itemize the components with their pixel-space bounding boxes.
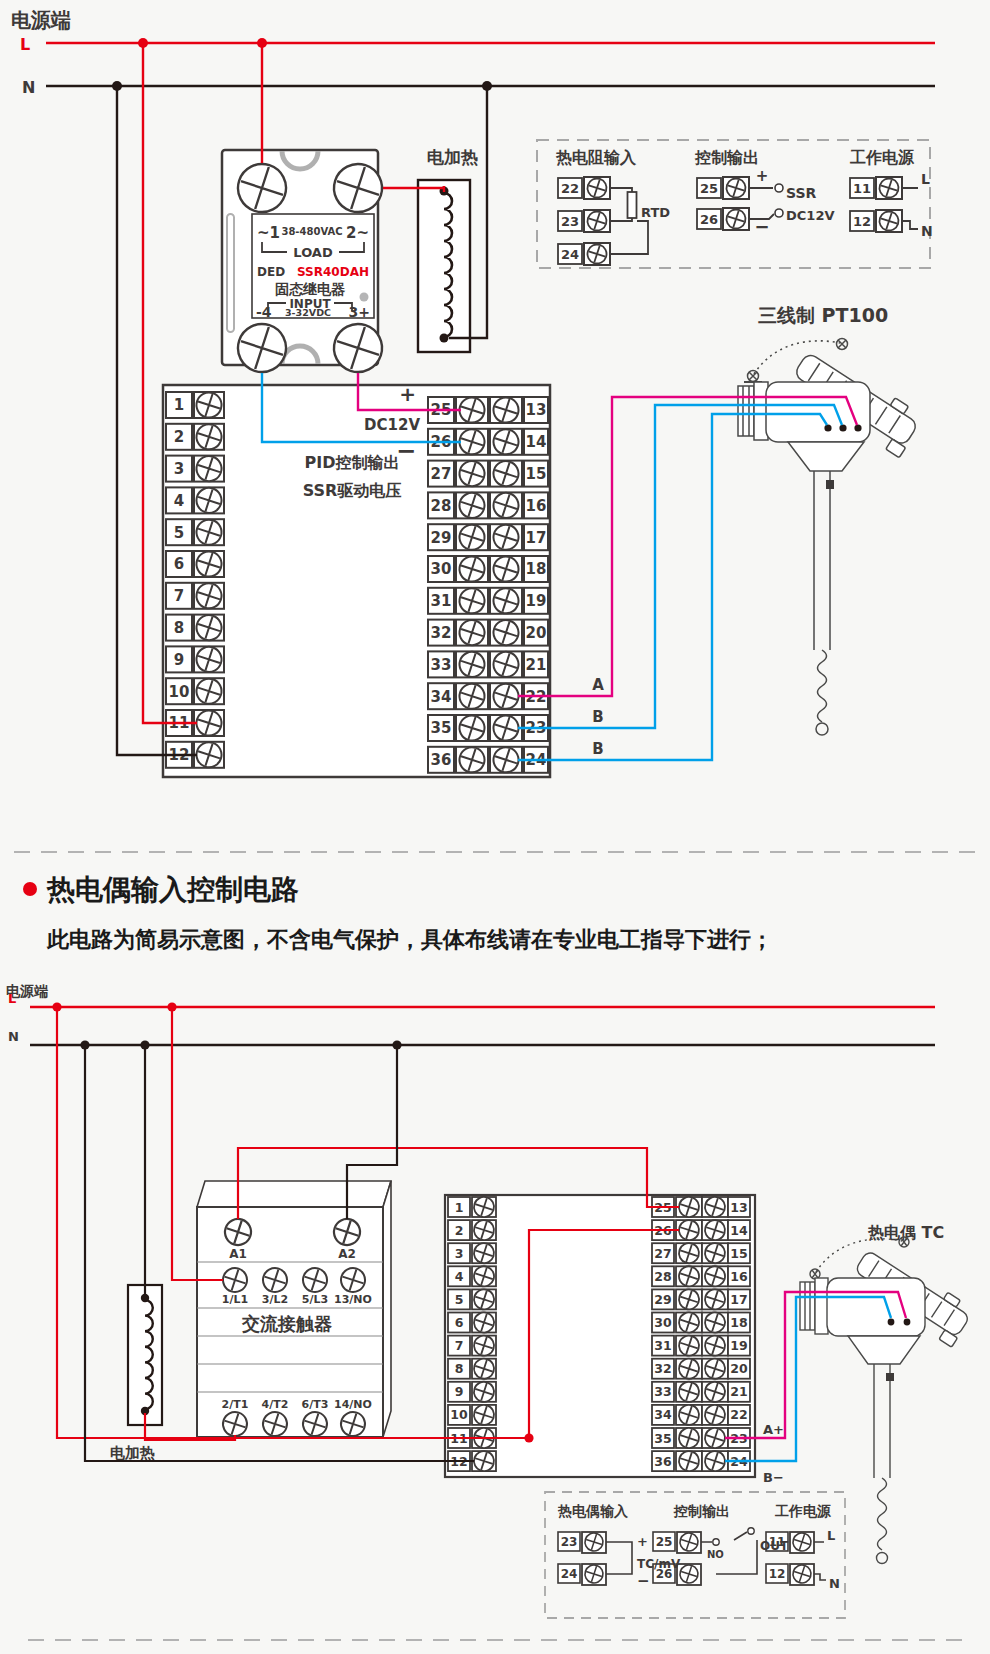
line-L-label-2: L [8,991,16,1006]
terminal-number: 4 [455,1269,464,1284]
ssr-terminal1-label: ~1 [257,224,280,242]
contactor-terminal-label: 1/L1 [222,1293,248,1306]
terminal-number: 34 [431,688,452,706]
terminal-number: 18 [730,1315,747,1330]
wire-B-minus-label: B− [763,1470,784,1485]
terminal-number: 29 [431,529,452,547]
wire-B1-label: B [592,708,603,726]
terminal-number: 4 [174,492,184,510]
contactor-name: 交流接触器 [241,1313,332,1334]
terminal-number: 15 [526,465,547,483]
terminal-number: 3 [174,460,184,478]
terminal-number: 33 [654,1384,671,1399]
sensor-neck [788,442,864,471]
terminal-number: 29 [654,1292,671,1307]
terminal-number: 15 [730,1246,747,1261]
rtd-label: RTD [641,205,670,220]
terminal-number: 1 [174,396,184,414]
tc-input-wires [606,1542,632,1574]
terminal-number: 9 [455,1384,464,1399]
top-circuit: 电源端 L N ~1 38-480VAC 2~ LOAD DED SSR40DA… [11,8,935,777]
sensor-nut [738,386,754,436]
line-L-label: L [20,35,30,54]
terminal-number: 32 [654,1361,671,1376]
terminal-number: 36 [431,751,452,769]
sensor-element-coil [818,650,827,722]
sensor-body-2 [827,1278,925,1336]
contactor-terminal-label: 3/L2 [262,1293,288,1306]
terminal-number: 22 [730,1407,747,1422]
terminal-number: 23 [561,214,579,229]
contactor-terminal-label: 2/T1 [222,1398,249,1411]
terminal-number: 12 [853,214,871,229]
terminal-number: 13 [526,401,547,419]
guide-ssr-label: SSR [786,185,817,201]
terminal-number: 17 [526,529,547,547]
terminal-number: 16 [526,497,547,515]
terminal-number: 33 [431,656,452,674]
terminal-number: 2 [174,428,184,446]
sensor-nut-2 [800,1282,815,1330]
power-terminal-label: 电源端 [11,8,71,32]
terminal-number: 19 [526,592,547,610]
terminal-number: 31 [431,592,452,610]
heater-label: 电加热 [427,147,478,167]
ssr-load-label: LOAD [293,245,333,260]
guide-N-label: N [921,223,933,239]
terminal-number: 18 [526,560,547,578]
wire-A-label: A [592,676,604,694]
terminal-number: 3 [455,1246,464,1261]
wiring-diagram-page: 电源端 L N ~1 38-480VAC 2~ LOAD DED SSR40DA… [0,0,990,1654]
terminal-number: 20 [526,624,547,642]
terminal-number: 25 [656,1535,673,1549]
wire-rtd-B1 [518,405,842,728]
block-plus-label: + [399,382,416,406]
contactor-terminal-label: 13/NO [334,1293,372,1306]
terminal-number: 30 [431,560,452,578]
electric-heater-2: 电加热 [110,1285,162,1462]
rtd-resistor [628,192,637,218]
block-dc12v-label: DC12V [364,416,420,434]
ssr-model: SSR40DAH [297,265,369,279]
terminal-number: 6 [455,1315,464,1330]
control-output-title: 控制输出 [694,148,759,167]
wire-rtd-B2 [518,414,827,760]
sensor-body [766,382,870,442]
control-output-wires [749,188,774,219]
working-power-wires [902,188,918,229]
tc-input-title: 热电偶输入 [557,1503,629,1519]
pt100-sensor: 三线制 PT100 [738,304,925,735]
sensor-neck-2 [848,1336,920,1364]
terminal-number: 16 [730,1269,748,1284]
ssr-input-voltage: 3-32VDC [285,307,331,318]
terminal-number: 24 [561,247,579,262]
terminal-number: 23 [561,1535,578,1549]
ssr-drive-label: SSR驱动电压 [303,481,402,500]
contactor-terminal-label: 14/NO [334,1398,372,1411]
sensor-probe-2 [874,1364,890,1478]
wire-A-plus-label: A+ [763,1422,784,1437]
terminal-number: 8 [455,1361,464,1376]
ssr-input-neg: -4 [256,304,272,320]
ssr-terminal2-label: 2~ [346,224,369,242]
wiring-guide-box-bottom: 热电偶输入 控制输出 工作电源 232425261112 + − TC/mV N… [545,1492,845,1618]
terminal-number: 21 [730,1384,747,1399]
heater-label-2: 电加热 [110,1444,155,1462]
terminal-number: 11 [853,181,871,196]
guide-plus-label: + [756,167,769,185]
terminal-number: 17 [730,1292,747,1307]
section-title: 热电偶输入控制电路 [46,873,299,906]
terminal-number: 9 [174,651,184,669]
terminal-number: 10 [169,683,190,701]
wiring-guide-box-top: 热电阻输入 控制输出 工作电源 22232425261112 RTD + − S… [537,140,933,268]
ac-contactor: A1 A2 交流接触器 1/L13/L25/L313/NO2/T14/T26/T… [197,1181,391,1439]
ssr-brand: DED [257,265,285,279]
ssr-voltage-label: 38-480VAC [281,226,342,237]
terminal-number: 21 [526,656,547,674]
control-output-title-2: 控制输出 [673,1503,730,1519]
guide-minus-label: − [754,216,769,237]
contactor-a2-label: A2 [338,1247,356,1261]
terminal-number: 20 [730,1361,748,1376]
ssr-input-pos: 3+ [349,304,370,320]
working-power-title-2: 工作电源 [774,1503,832,1519]
terminal-number: 30 [654,1315,672,1330]
terminal-number: 6 [174,555,184,573]
pid-output-label: PID控制输出 [305,453,400,472]
terminal-number: 14 [730,1223,748,1238]
terminal-number: 27 [654,1246,671,1261]
electric-heater: 电加热 [418,147,478,352]
line-N-label: N [22,78,35,97]
guide-dc12v-label: DC12V [786,208,834,223]
terminal-number: 28 [654,1269,671,1284]
relay-out-label: OUT [760,1539,789,1553]
tc-minus: − [637,1572,650,1590]
terminal-number: 36 [654,1454,672,1469]
contactor-a1-label: A1 [229,1247,247,1261]
terminal-number: 32 [431,624,452,642]
terminal-number: 26 [700,212,718,227]
controller-terminal-block-bottom: 1251322614327154281652917630187311983220… [445,1194,755,1477]
rtd-input-title: 热电阻输入 [555,148,637,167]
terminal-number: 19 [730,1338,747,1353]
pt100-sensor-label: 三线制 PT100 [758,304,888,326]
working-power-title: 工作电源 [849,148,915,167]
contactor-terminal-label: 4/T2 [262,1398,289,1411]
ssr-solid-state-relay: ~1 38-480VAC 2~ LOAD DED SSR40DAH 固态继电器 … [222,150,388,378]
bottom-circuit: 电源端 L N A1 A2 交流接触器 1/L13/L25/L313/NO2/T… [6,983,976,1618]
terminal-number: 27 [431,465,452,483]
terminal-number: 7 [174,587,184,605]
tc-mv-label: TC/mV [637,1557,681,1571]
terminal-number: 2 [455,1223,464,1238]
terminal-number: 22 [561,181,579,196]
guide-L-label-2: L [827,1528,835,1543]
section-bullet [23,882,37,896]
guide-L-label: L [921,171,930,187]
terminal-number: 35 [431,719,452,737]
guide-N-label-2: N [829,1576,840,1591]
terminal-number: 5 [174,524,184,542]
wiring-diagram: 电源端 L N ~1 38-480VAC 2~ LOAD DED SSR40DA… [0,0,990,1654]
sensor-probe [814,471,830,650]
terminal-number: 8 [174,619,184,637]
relay-no-label: NO [707,1549,724,1560]
section-subtitle: 此电路为简易示意图，不含电气保护，具体布线请在专业电工指导下进行； [46,927,773,952]
sensor-element-coil-2 [878,1478,887,1550]
terminal-number: 14 [526,433,547,451]
terminal-number: 13 [730,1200,747,1215]
terminal-number: 10 [450,1407,468,1422]
line-N-label-2: N [8,1029,19,1044]
working-power-wires-2 [814,1542,826,1580]
terminal-number: 34 [654,1407,672,1422]
ssr-name: 固态继电器 [275,281,346,297]
terminal-number: 35 [654,1431,671,1446]
ssr-led [360,293,369,302]
terminal-number: 24 [561,1567,578,1581]
terminal-number: 28 [431,497,452,515]
terminal-number: 1 [455,1200,464,1215]
contactor-terminal-label: 5/L3 [302,1293,328,1306]
contactor-terminal-label: 6/T3 [302,1398,329,1411]
terminal-number: 31 [654,1338,671,1353]
tc-plus: + [637,1534,648,1549]
terminal-number: 12 [769,1567,786,1581]
wire-B2-label: B [592,740,603,758]
terminal-number: 5 [455,1292,464,1307]
terminal-number: 25 [700,181,718,196]
terminal-number: 7 [455,1338,464,1353]
